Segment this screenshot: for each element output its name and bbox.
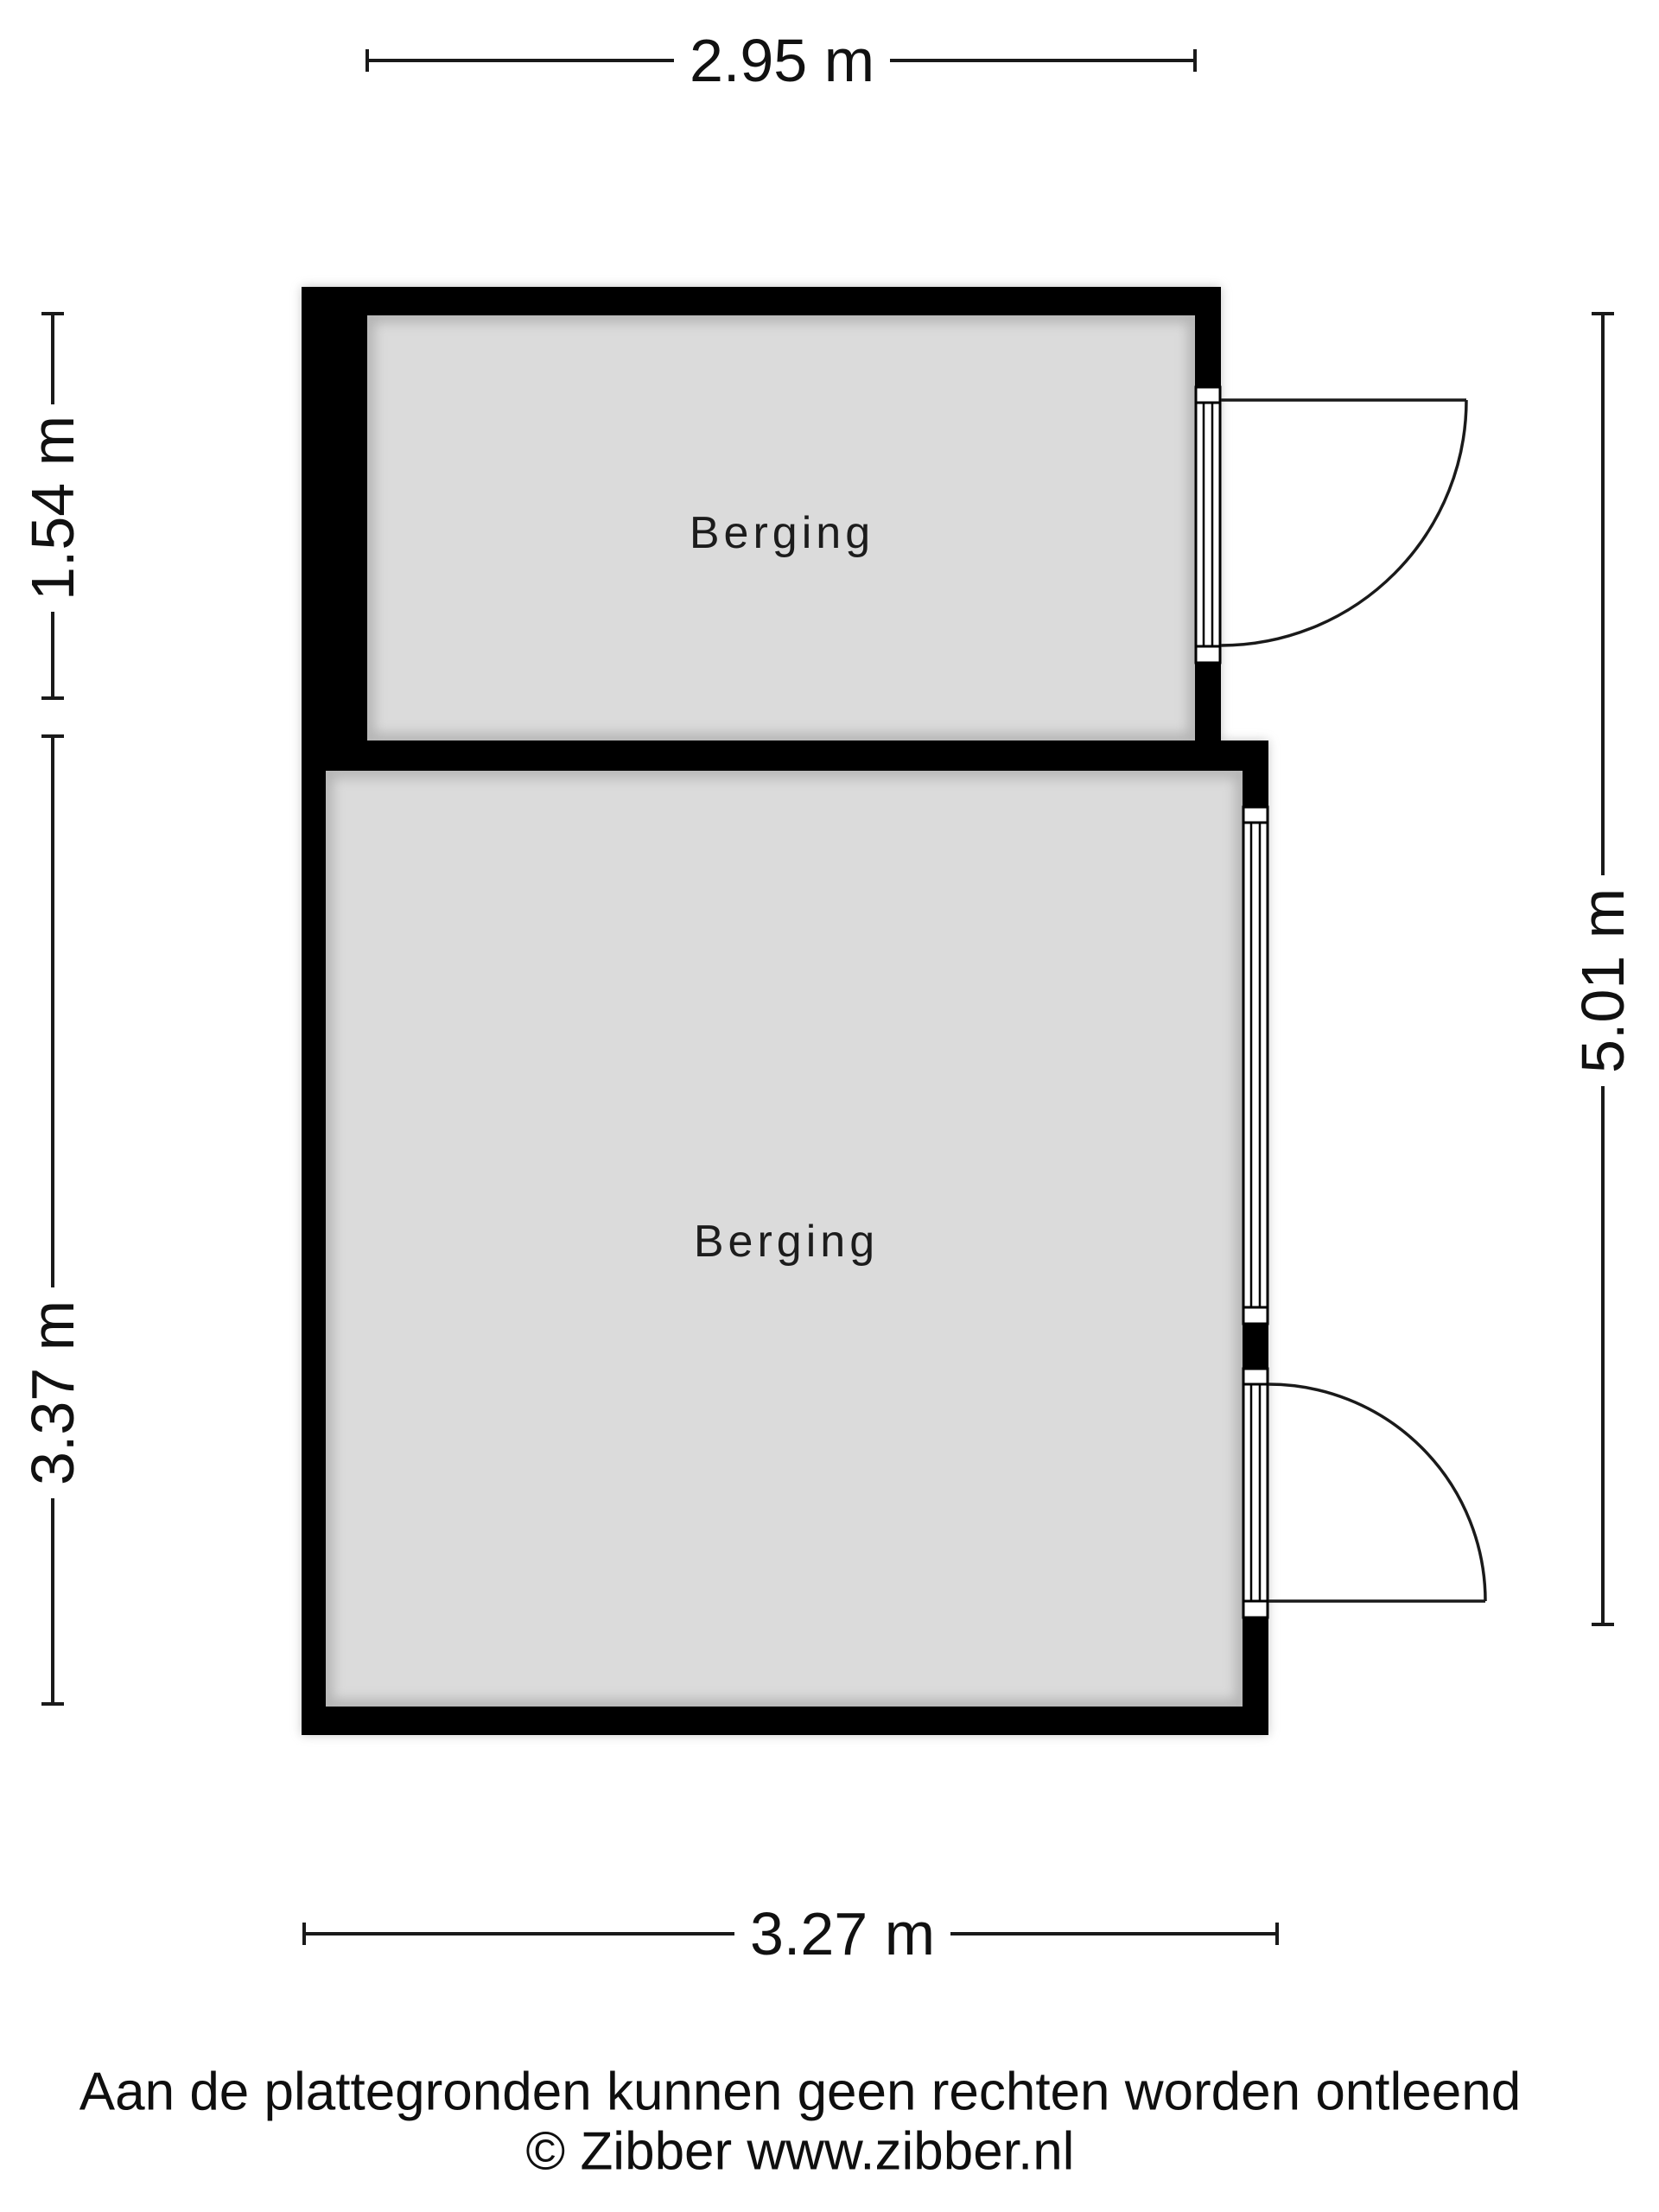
window-lower-frame [1243, 823, 1268, 1307]
dimension-bottom-label: 3.27 m [750, 1900, 935, 1967]
footer-disclaimer: Aan de plattegronden kunnen geen rechten… [79, 2063, 1521, 2122]
dimension-right-label: 5.01 m [1569, 888, 1637, 1073]
floorplan-canvas: Berging Berging [0, 0, 1659, 2212]
room-upper: Berging [302, 287, 1221, 771]
dimension-left-upper-label: 1.54 m [19, 416, 86, 601]
window-lower [1243, 806, 1268, 1325]
window-lower-jamb-top [1243, 807, 1268, 823]
door-lower-frame [1243, 1384, 1268, 1601]
room-upper-label: Berging [690, 508, 874, 558]
door-lower-jamb-bottom [1243, 1601, 1268, 1618]
door-upper-frame [1196, 403, 1220, 646]
footer-copyright: © Zibber www.zibber.nl [526, 2122, 1075, 2182]
door-lower-jamb-top [1243, 1369, 1268, 1384]
room-lower-label: Berging [694, 1217, 879, 1267]
floorplan-page: Berging Berging [0, 0, 1659, 2212]
door-upper-jamb-top [1196, 387, 1220, 403]
dimension-top-label: 2.95 m [690, 27, 874, 94]
dimension-left-lower-label: 3.37 m [19, 1300, 86, 1485]
door-upper-jamb-bottom [1196, 646, 1220, 663]
room-lower: Berging [302, 741, 1268, 1735]
window-lower-jamb-bottom [1243, 1307, 1268, 1324]
